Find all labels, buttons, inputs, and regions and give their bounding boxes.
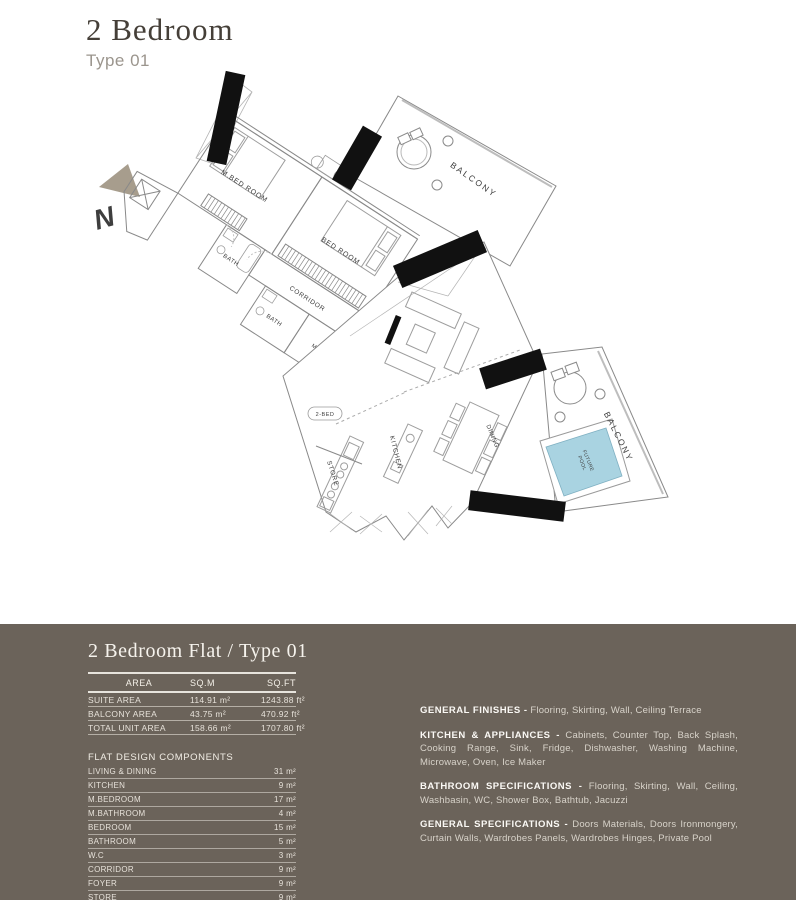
- list-item: W.C3 m²: [88, 849, 296, 863]
- list-item: FOYER9 m²: [88, 877, 296, 891]
- list-item: LIVING & DINING31 m²: [88, 765, 296, 779]
- spec-kitchen-appliances: KITCHEN & APPLIANCES - Cabinets, Counter…: [420, 729, 738, 770]
- room-m-bedroom: [178, 116, 322, 254]
- label-bedroom: BED ROOM: [320, 236, 361, 266]
- list-item: M.BATHROOM4 m²: [88, 807, 296, 821]
- label-bath-1: BATH: [222, 253, 240, 268]
- list-item: M.BEDROOM17 m²: [88, 793, 296, 807]
- list-item: KITCHEN9 m²: [88, 779, 296, 793]
- label-bath-2: BATH: [265, 314, 283, 329]
- floorplan-page: 2 Bedroom Type 01 N: [0, 0, 796, 900]
- area-table-header: AREA SQ.M SQ.FT: [88, 672, 296, 693]
- spec-general-finishes: GENERAL FINISHES - Flooring, Skirting, W…: [420, 704, 738, 718]
- col-header-sqft: SQ.FT: [261, 678, 296, 688]
- col-header-sqm: SQ.M: [190, 678, 261, 688]
- label-unit-tag: 2-BED: [316, 412, 335, 418]
- shear-wall-5: [468, 490, 566, 522]
- bath-fixtures: [197, 228, 293, 317]
- components-title: FLAT DESIGN COMPONENTS: [88, 752, 233, 763]
- specifications: GENERAL FINISHES - Flooring, Skirting, W…: [420, 704, 738, 856]
- balcony-bottom: FUTURE POOL BALCONY: [540, 347, 668, 512]
- spec-general: GENERAL SPECIFICATIONS - Doors Materials…: [420, 818, 738, 845]
- info-panel: 2 Bedroom Flat / Type 01 AREA SQ.M SQ.FT…: [0, 624, 796, 900]
- list-item: BATHROOM5 m²: [88, 835, 296, 849]
- label-m-bedroom: M.BED ROOM: [220, 169, 269, 204]
- label-corridor: CORRIDOR: [288, 285, 326, 313]
- list-item: STORE9 m²: [88, 891, 296, 900]
- north-label: N: [90, 200, 119, 236]
- area-table: AREA SQ.M SQ.FT SUITE AREA 114.91 m² 124…: [88, 672, 296, 735]
- list-item: CORRIDOR9 m²: [88, 863, 296, 877]
- table-row: BALCONY AREA 43.75 m² 470.92 ft²: [88, 707, 296, 721]
- panel-title: 2 Bedroom Flat / Type 01: [88, 640, 308, 663]
- col-header-area: AREA: [88, 678, 190, 688]
- spec-bathroom: BATHROOM SPECIFICATIONS - Flooring, Skir…: [420, 780, 738, 807]
- floorplan-drawing: N: [0, 0, 796, 624]
- table-row: TOTAL UNIT AREA 158.66 m² 1707.80 ft²: [88, 721, 296, 735]
- shear-wall-1: [207, 71, 246, 165]
- table-row: SUITE AREA 114.91 m² 1243.88 ft²: [88, 693, 296, 707]
- bed-bedroom: [321, 201, 401, 276]
- plan-area: 2 Bedroom Type 01 N: [0, 0, 796, 624]
- list-item: BEDROOM15 m²: [88, 821, 296, 835]
- components-list: LIVING & DINING31 m² KITCHEN9 m² M.BEDRO…: [88, 765, 296, 900]
